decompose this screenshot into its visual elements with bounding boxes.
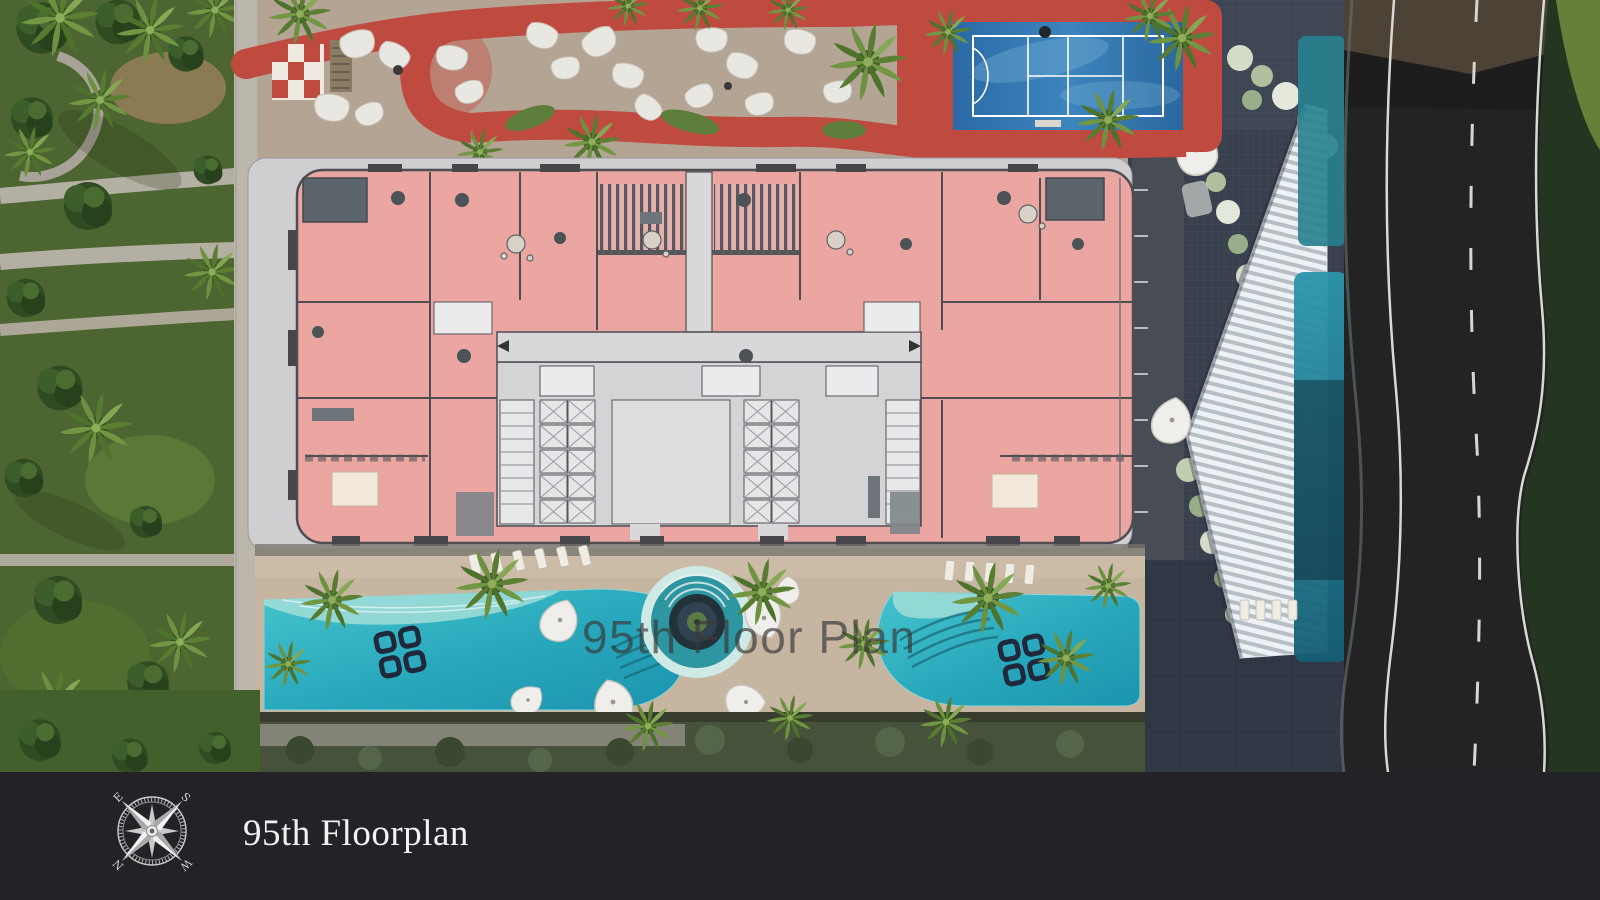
compass-icon: N E S W (97, 770, 207, 892)
road (1341, 0, 1600, 772)
corridor (497, 332, 921, 362)
footer-bar: N E S W 95th Floorplan (0, 772, 1600, 900)
lap-pool-upper (1298, 36, 1346, 246)
floorplan-page: 95th Floor Plan (0, 0, 1600, 900)
stairs (500, 400, 534, 524)
lift-bank (744, 400, 799, 523)
fire-pit (724, 82, 732, 90)
lift-bank (540, 400, 595, 523)
floorplan-core (497, 332, 921, 540)
terrace-pool (1046, 178, 1104, 220)
tennis-court (953, 22, 1183, 130)
aerial-view: 95th Floor Plan (0, 0, 1600, 772)
watermark-title: 95th Floor Plan (582, 610, 916, 664)
footer-title: 95th Floorplan (243, 812, 469, 855)
building-floorplan (248, 158, 1133, 550)
terrace-pool (303, 178, 367, 222)
park-left (0, 0, 262, 772)
lift-lobby (612, 400, 730, 524)
driveway (1132, 152, 1184, 560)
fire-pit (393, 65, 403, 75)
